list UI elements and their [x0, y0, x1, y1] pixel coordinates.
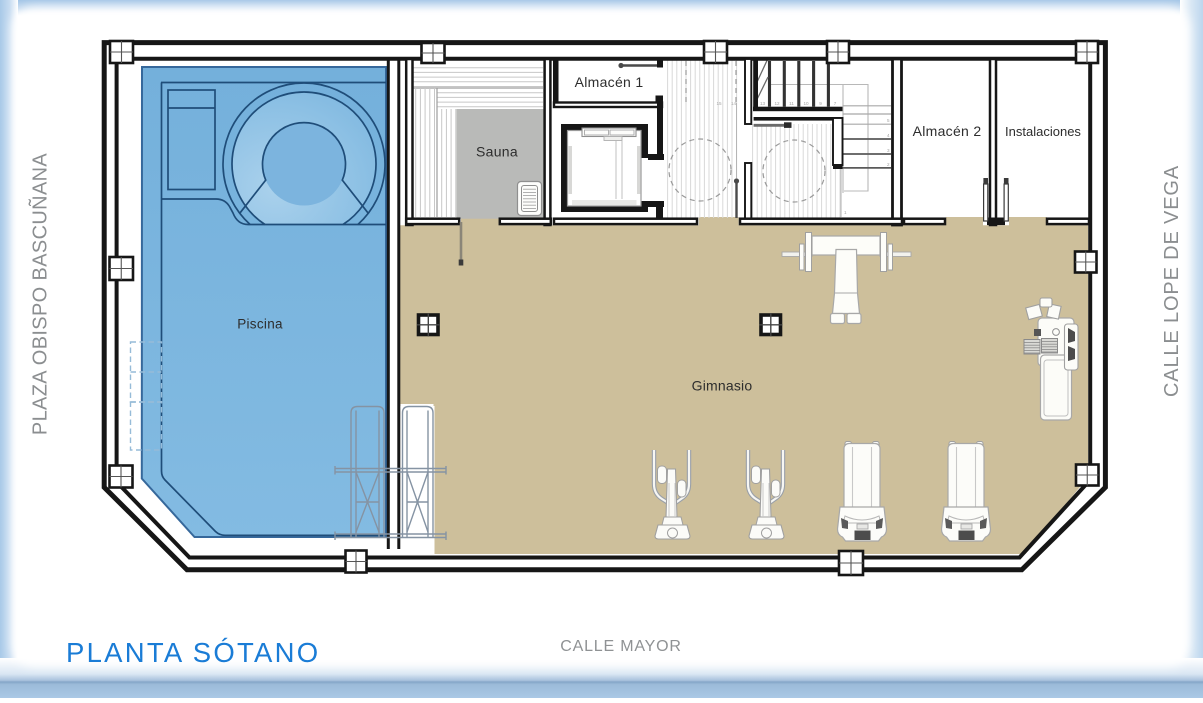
svg-text:3: 3: [887, 148, 890, 153]
svg-text:9: 9: [819, 101, 822, 106]
svg-text:4: 4: [887, 133, 890, 138]
svg-text:Almacén 2: Almacén 2: [913, 123, 982, 139]
svg-text:1: 1: [844, 210, 847, 215]
svg-text:5: 5: [887, 118, 890, 123]
svg-text:12: 12: [774, 101, 780, 106]
svg-text:PLANTA SÓTANO: PLANTA SÓTANO: [66, 637, 320, 668]
svg-text:CALLE MAYOR: CALLE MAYOR: [560, 638, 681, 655]
svg-text:Piscina: Piscina: [237, 317, 283, 332]
svg-text:7: 7: [834, 101, 837, 106]
svg-text:Gimnasio: Gimnasio: [692, 378, 753, 394]
svg-text:11: 11: [789, 101, 794, 106]
svg-text:14: 14: [731, 101, 737, 106]
svg-text:15: 15: [716, 101, 722, 106]
svg-text:Almacén 1: Almacén 1: [575, 74, 644, 90]
svg-text:13: 13: [760, 101, 766, 106]
svg-text:10: 10: [803, 101, 809, 106]
svg-text:CALLE LOPE DE VEGA: CALLE LOPE DE VEGA: [1161, 165, 1183, 397]
svg-text:Sauna: Sauna: [476, 144, 518, 160]
svg-text:PLAZA OBISPO BASCUÑANA: PLAZA OBISPO BASCUÑANA: [28, 153, 52, 436]
svg-text:Instalaciones: Instalaciones: [1005, 124, 1081, 139]
svg-text:2: 2: [887, 162, 890, 167]
